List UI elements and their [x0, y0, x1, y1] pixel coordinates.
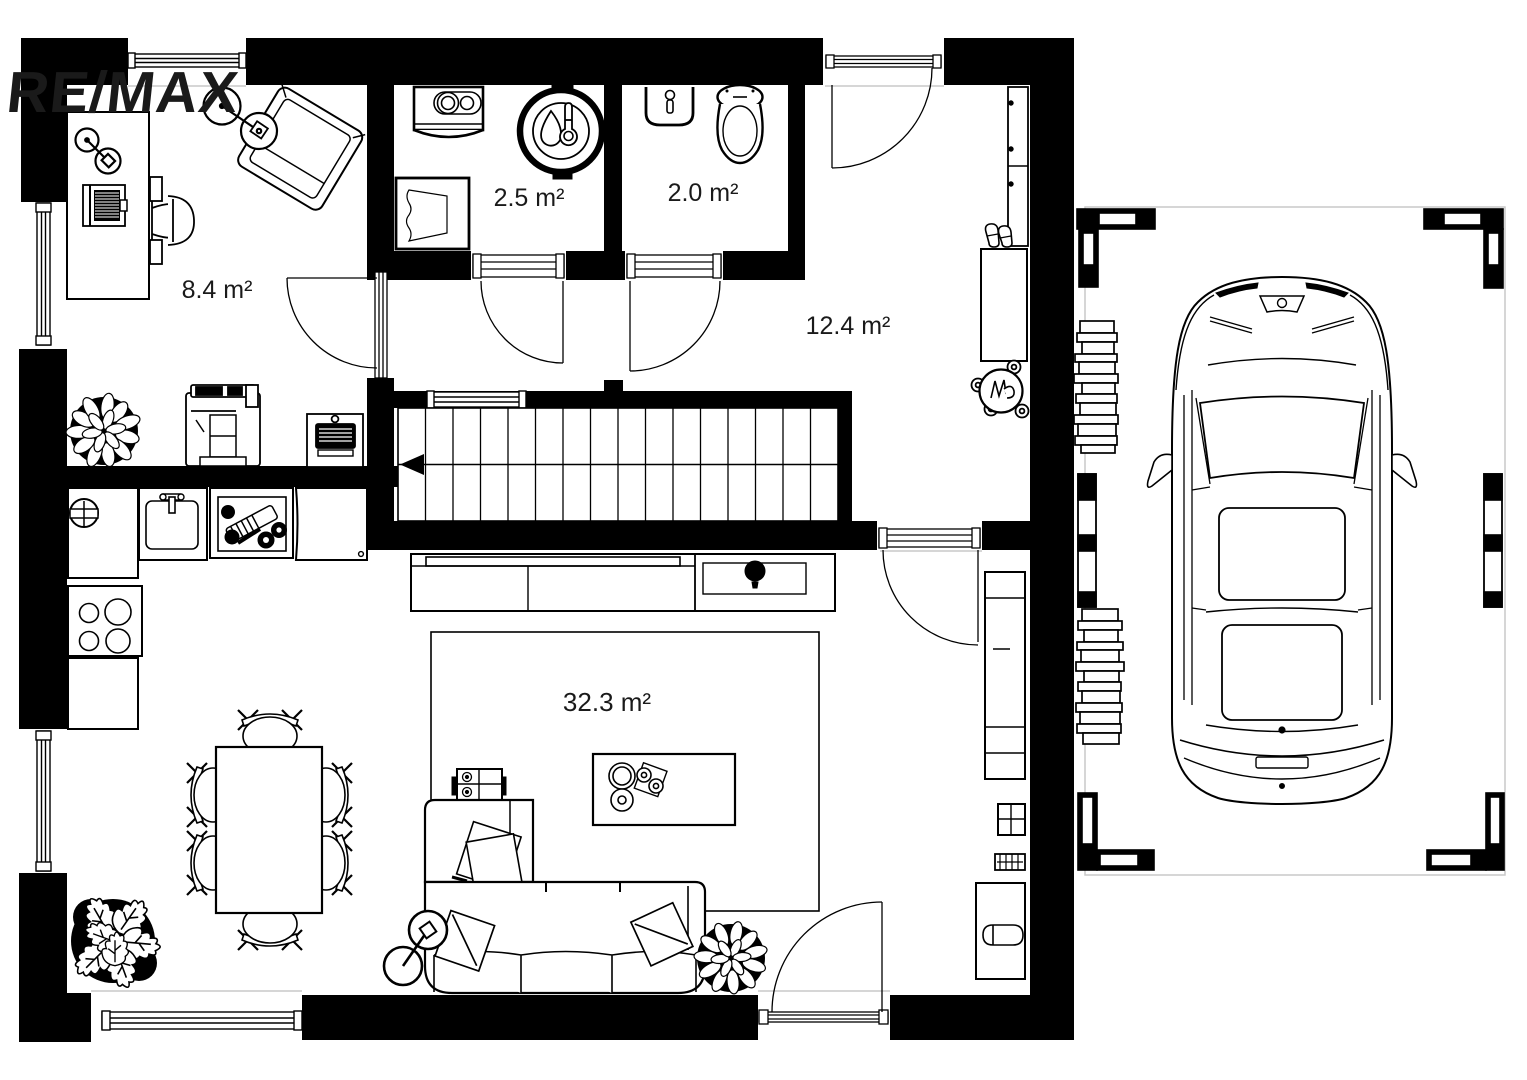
- svg-text:RE/MAX: RE/MAX: [4, 60, 242, 125]
- svg-text:32.3 m²: 32.3 m²: [563, 687, 651, 717]
- svg-text:2.5 m²: 2.5 m²: [494, 184, 565, 212]
- svg-text:8.4 m²: 8.4 m²: [182, 276, 253, 304]
- svg-text:12.4 m²: 12.4 m²: [806, 312, 891, 340]
- svg-text:2.0 m²: 2.0 m²: [668, 179, 739, 207]
